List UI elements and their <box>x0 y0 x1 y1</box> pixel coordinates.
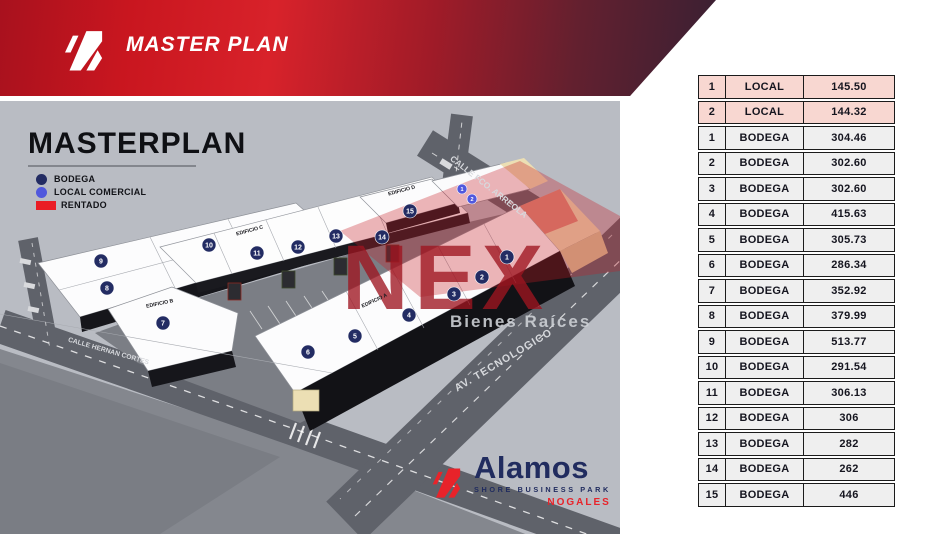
unit-type: BODEGA <box>725 433 803 455</box>
bodega-unit-marker: 3 <box>447 287 461 301</box>
unit-number: 6 <box>699 255 725 277</box>
table-row: 6BODEGA286.34 <box>698 254 895 278</box>
unit-number: 1 <box>699 127 725 149</box>
masterplan-title: MASTERPLAN <box>28 127 246 161</box>
brand-city: NOGALES <box>474 497 611 508</box>
table-row: 9BODEGA513.77 <box>698 330 895 354</box>
header-banner: MASTER PLAN <box>0 0 716 96</box>
unit-area: 145.50 <box>803 76 894 98</box>
unit-type: BODEGA <box>725 255 803 277</box>
unit-type: LOCAL <box>725 76 803 98</box>
page-title: MASTER PLAN <box>126 33 289 57</box>
unit-type: BODEGA <box>725 357 803 379</box>
unit-type: BODEGA <box>725 382 803 404</box>
bodega-unit-marker: 14 <box>375 230 389 244</box>
unit-type: BODEGA <box>725 459 803 481</box>
unit-type: BODEGA <box>725 153 803 175</box>
alamos-mark-icon <box>426 457 466 505</box>
legend-item: LOCAL COMERCIAL <box>36 186 146 198</box>
bodega-unit-marker: 9 <box>94 254 108 268</box>
svg-text:8: 8 <box>105 286 109 293</box>
unit-type: BODEGA <box>725 331 803 353</box>
bodega-unit-marker: 8 <box>100 281 114 295</box>
svg-text:2: 2 <box>470 197 473 203</box>
svg-text:10: 10 <box>205 243 213 250</box>
bodega-unit-marker: 13 <box>329 229 343 243</box>
unit-area: 513.77 <box>803 331 894 353</box>
unit-type: BODEGA <box>725 229 803 251</box>
bodega-unit-marker: 7 <box>156 316 170 330</box>
legend-swatch <box>36 201 56 210</box>
bodega-unit-marker: 2 <box>475 270 489 284</box>
unit-number: 8 <box>699 306 725 328</box>
unit-number: 12 <box>699 408 725 430</box>
svg-text:13: 13 <box>332 234 340 241</box>
unit-number: 10 <box>699 357 725 379</box>
unit-area: 304.46 <box>803 127 894 149</box>
svg-text:2: 2 <box>480 275 484 282</box>
svg-text:1: 1 <box>505 255 509 262</box>
alamos-brand: Alamos SHORE BUSINESS PARK NOGALES <box>426 453 611 508</box>
legend-item: BODEGA <box>36 173 146 185</box>
unit-type: BODEGA <box>725 306 803 328</box>
table-row: 13BODEGA282 <box>698 432 895 456</box>
bodega-unit-marker: 1 <box>500 250 514 264</box>
unit-number: 3 <box>699 178 725 200</box>
table-row: 14BODEGA262 <box>698 458 895 482</box>
legend-label: LOCAL COMERCIAL <box>54 187 146 197</box>
bodega-unit-marker: 15 <box>403 204 417 218</box>
unit-area: 302.60 <box>803 178 894 200</box>
table-row: 8BODEGA379.99 <box>698 305 895 329</box>
unit-number: 11 <box>699 382 725 404</box>
table-row: 1LOCAL145.50 <box>698 75 895 99</box>
legend-label: RENTADO <box>61 200 107 210</box>
bodega-unit-marker: 6 <box>301 345 315 359</box>
table-row: 7BODEGA352.92 <box>698 279 895 303</box>
legend-swatch <box>36 187 47 198</box>
bodega-unit-marker: 12 <box>291 240 305 254</box>
brand-name: Alamos <box>474 453 611 483</box>
svg-text:14: 14 <box>378 235 386 242</box>
table-row: 2LOCAL144.32 <box>698 101 895 125</box>
svg-text:1: 1 <box>460 187 463 193</box>
unit-type: BODEGA <box>725 408 803 430</box>
table-row: 15BODEGA446 <box>698 483 895 507</box>
brand-tagline: SHORE BUSINESS PARK <box>474 485 611 494</box>
unit-number: 1 <box>699 76 725 98</box>
svg-text:11: 11 <box>253 251 261 258</box>
unit-number: 5 <box>699 229 725 251</box>
unit-number: 15 <box>699 484 725 506</box>
table-row: 3BODEGA302.60 <box>698 177 895 201</box>
bodega-unit-marker: 4 <box>402 308 416 322</box>
table-row: 5BODEGA305.73 <box>698 228 895 252</box>
unit-number: 14 <box>699 459 725 481</box>
unit-number: 2 <box>699 153 725 175</box>
tan-kiosk <box>293 390 319 411</box>
unit-area: 306 <box>803 408 894 430</box>
unit-area: 352.92 <box>803 280 894 302</box>
svg-text:7: 7 <box>161 321 165 328</box>
bodega-unit-marker: 10 <box>202 238 216 252</box>
unit-area: 302.60 <box>803 153 894 175</box>
svg-text:15: 15 <box>406 209 414 216</box>
slide: MASTER PLAN <box>0 0 936 534</box>
svg-text:9: 9 <box>99 259 103 266</box>
unit-type: LOCAL <box>725 102 803 124</box>
unit-number: 7 <box>699 280 725 302</box>
table-row: 2BODEGA302.60 <box>698 152 895 176</box>
unit-type: BODEGA <box>725 280 803 302</box>
legend-label: BODEGA <box>54 174 95 184</box>
unit-number: 4 <box>699 204 725 226</box>
title-underline <box>28 165 196 167</box>
table-row: 12BODEGA306 <box>698 407 895 431</box>
svg-text:3: 3 <box>452 292 456 299</box>
svg-text:5: 5 <box>353 334 357 341</box>
bodega-unit-marker: 11 <box>250 246 264 260</box>
unit-area: 415.63 <box>803 204 894 226</box>
table-row: 10BODEGA291.54 <box>698 356 895 380</box>
masterplan-panel: NEX Bienes Raíces CALLE FCO. ARREOLA AV.… <box>0 101 620 534</box>
table-row: 11BODEGA306.13 <box>698 381 895 405</box>
units-table: 1LOCAL145.502LOCAL144.321BODEGA304.462BO… <box>698 75 895 507</box>
local-unit-marker: 2 <box>467 194 477 204</box>
unit-number: 13 <box>699 433 725 455</box>
table-row: 4BODEGA415.63 <box>698 203 895 227</box>
unit-area: 291.54 <box>803 357 894 379</box>
unit-area: 144.32 <box>803 102 894 124</box>
legend: BODEGALOCAL COMERCIALRENTADO <box>36 173 146 212</box>
unit-area: 286.34 <box>803 255 894 277</box>
svg-text:6: 6 <box>306 350 310 357</box>
unit-area: 379.99 <box>803 306 894 328</box>
unit-area: 446 <box>803 484 894 506</box>
unit-number: 9 <box>699 331 725 353</box>
unit-type: BODEGA <box>725 204 803 226</box>
unit-area: 282 <box>803 433 894 455</box>
unit-area: 262 <box>803 459 894 481</box>
unit-type: BODEGA <box>725 178 803 200</box>
svg-text:12: 12 <box>294 245 302 252</box>
bodega-unit-marker: 5 <box>348 329 362 343</box>
local-unit-marker: 1 <box>457 184 467 194</box>
unit-number: 2 <box>699 102 725 124</box>
watermark-subtext: Bienes Raíces <box>450 312 591 331</box>
unit-area: 306.13 <box>803 382 894 404</box>
svg-text:4: 4 <box>407 313 411 320</box>
legend-item: RENTADO <box>36 199 146 211</box>
alamos-mark-icon <box>56 20 110 76</box>
unit-type: BODEGA <box>725 484 803 506</box>
table-row: 1BODEGA304.46 <box>698 126 895 150</box>
unit-type: BODEGA <box>725 127 803 149</box>
legend-swatch <box>36 174 47 185</box>
unit-area: 305.73 <box>803 229 894 251</box>
